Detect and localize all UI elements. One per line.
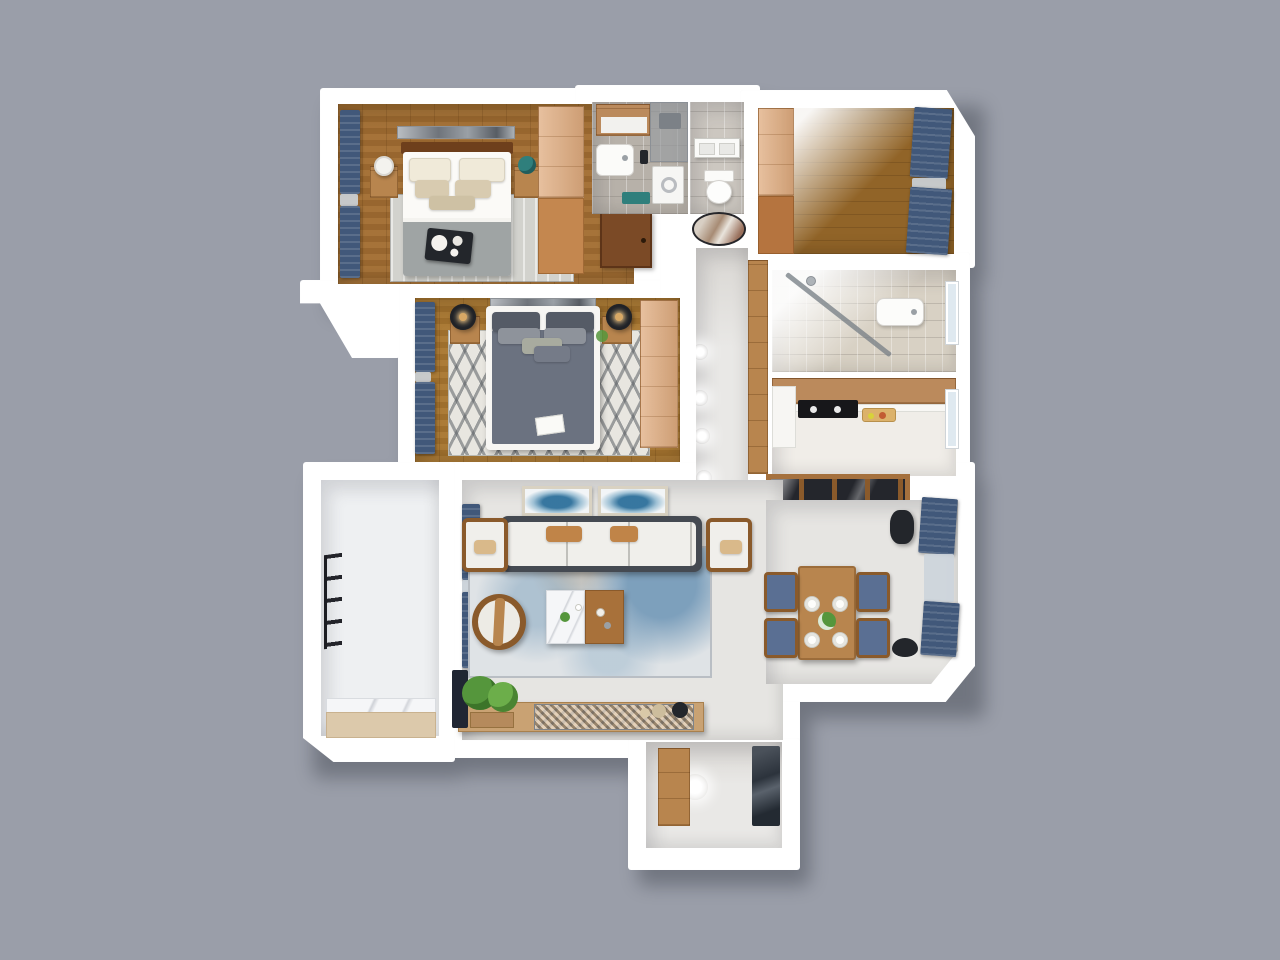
- hallway-spotlight-1: [692, 344, 708, 360]
- dining-fan: [892, 638, 918, 660]
- bedroom1-table-lamp: [374, 156, 394, 176]
- hallway-storage-cabinets: [748, 260, 768, 474]
- dining-curtain-sheer: [924, 554, 954, 602]
- entry-dark-wall-panel: [752, 746, 780, 826]
- kitchen-cooktop: [798, 400, 858, 418]
- bathroom2-shower-head: [806, 276, 816, 286]
- bedroom2-book: [535, 414, 565, 436]
- living-plant-foliage-2: [488, 682, 518, 712]
- bedroom1-wardrobe-upper: [538, 106, 584, 198]
- balcony-bench: [326, 712, 436, 738]
- bedroom2-curtain-sheer: [415, 372, 431, 382]
- washer-door: [661, 177, 677, 193]
- living-artwork-left: [522, 486, 592, 516]
- coffee-table-decor: [604, 622, 611, 629]
- towel-1: [699, 143, 715, 155]
- food-item-2: [879, 412, 886, 419]
- bedroom2-plant: [596, 330, 608, 342]
- bedroom1-pillow-back-left: [409, 158, 451, 182]
- decor-sphere-small: [640, 708, 650, 718]
- hallway-spotlight-3: [694, 428, 710, 444]
- dining-chair-right-bottom: [856, 618, 890, 658]
- bedroom3-wardrobe-upper: [758, 108, 794, 196]
- lamp-glow-right: [615, 313, 623, 321]
- sofa-pillow-tan-right: [610, 526, 638, 542]
- decor-sphere-black: [672, 702, 688, 718]
- coffee-table-cup: [575, 604, 582, 611]
- coffee-table-wood-half: [585, 590, 624, 644]
- lamp-glow-left: [459, 313, 467, 321]
- dining-floor-lamp: [890, 510, 914, 544]
- bathroom1-bath-mat: [622, 192, 650, 204]
- bedroom2-drum-lamp-right: [606, 304, 632, 330]
- hallway-spotlight-2: [692, 390, 708, 406]
- bathroom1-mirror-cabinet: [596, 104, 650, 136]
- bathroom1-shower-glass: [650, 102, 688, 162]
- bedroom1-wall-art: [397, 126, 515, 139]
- bathroom2-sink: [876, 298, 924, 326]
- towel-2: [719, 143, 735, 155]
- balcony-drying-rack: [324, 553, 342, 650]
- burner-1: [810, 406, 817, 413]
- bedroom3-curtain-top: [910, 107, 953, 179]
- dining-centerpiece-flowers: [818, 612, 836, 630]
- sink2-faucet: [911, 309, 917, 315]
- bedroom1-curtain-bottom: [340, 206, 360, 278]
- bedroom1-door: [600, 212, 652, 268]
- living-tv-panel: [534, 704, 694, 730]
- kitchen-white-cabinet: [772, 386, 796, 448]
- place-setting-1: [804, 596, 820, 612]
- decor-sphere-medium: [652, 704, 666, 718]
- cabinet-shelf: [601, 117, 647, 133]
- coffee-table-plant: [560, 612, 570, 622]
- hallway-oval-artwork: [692, 212, 746, 246]
- coffee-table-bowl: [596, 608, 605, 617]
- bedroom3-wardrobe-lower: [758, 196, 794, 254]
- bedroom3-curtain-bottom: [906, 187, 953, 256]
- bedroom1-wardrobe-lower: [538, 198, 584, 274]
- place-setting-3: [804, 632, 820, 648]
- living-artwork-right: [598, 486, 668, 516]
- tray-cup: [450, 248, 459, 257]
- bedroom1-curtain-top: [340, 110, 360, 194]
- dining-chair-right-top: [856, 572, 890, 612]
- wc-towel-shelf: [694, 138, 740, 158]
- bedroom1-plant: [518, 156, 536, 174]
- armchair-left-pillow: [474, 540, 496, 554]
- dining-chair-left-bottom: [764, 618, 798, 658]
- living-sofa-cushions: [506, 522, 696, 566]
- place-setting-4: [832, 632, 848, 648]
- dining-curtain-bottom: [920, 601, 960, 657]
- bathroom1-washing-machine: [652, 166, 684, 204]
- bedroom2-curtain-bottom: [415, 382, 435, 454]
- bedroom2-wardrobe: [640, 300, 678, 448]
- living-armchair-left: [462, 518, 508, 572]
- floorplan-render: [0, 0, 1280, 960]
- tray-plate-large: [430, 234, 448, 252]
- tray-plate-small: [452, 235, 463, 246]
- kitchen-cutting-board: [862, 408, 896, 422]
- bathroom1-sink: [596, 144, 634, 176]
- armchair-right-pillow: [720, 540, 742, 554]
- bedroom1-curtain-sheer: [340, 194, 358, 206]
- kitchen-window: [946, 390, 958, 448]
- shower-tray: [659, 113, 681, 129]
- bedroom2-pillow-front: [534, 346, 570, 362]
- bathroom1-bottle: [640, 150, 648, 164]
- bathroom2-window: [946, 282, 958, 344]
- bedroom2-curtain-top: [415, 302, 435, 372]
- dining-curtain-top: [918, 497, 958, 555]
- entry-shoe-cabinet: [658, 748, 690, 826]
- burner-2: [834, 406, 841, 413]
- food-item-1: [868, 413, 874, 419]
- sink-faucet: [622, 155, 628, 161]
- dining-chair-left-top: [764, 572, 798, 612]
- place-setting-2: [832, 596, 848, 612]
- bedroom2-drum-lamp-left: [450, 304, 476, 330]
- sofa-pillow-tan-left: [546, 526, 582, 542]
- bedroom1-pillow-back-right: [459, 158, 505, 182]
- living-armchair-right: [706, 518, 752, 572]
- hallway-floor: [696, 248, 748, 498]
- wc-toilet-bowl: [706, 180, 732, 204]
- bedroom1-breakfast-tray: [424, 228, 473, 265]
- door-knob: [641, 238, 646, 243]
- bedroom1-lumbar-pillow: [429, 196, 475, 210]
- living-plant-box: [470, 712, 514, 728]
